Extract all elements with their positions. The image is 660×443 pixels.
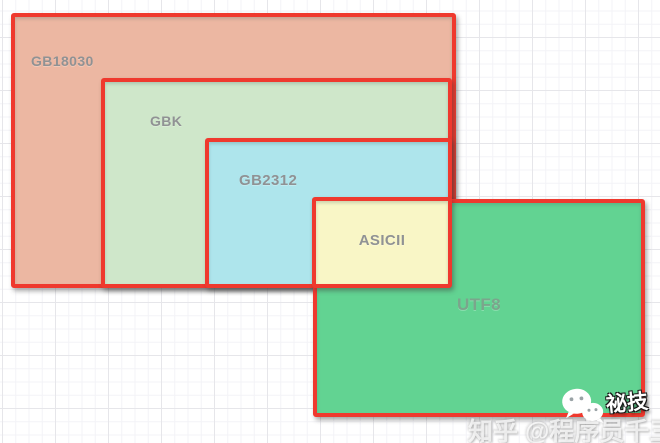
grid-background: GB18030 GBK GB2312 UTF8 ASICII 知乎 @程序员千三… [0,0,660,443]
wechat-badge-label: 祕技 [605,385,649,419]
region-label-asicii: ASICII [316,232,448,249]
wechat-badge: 祕技 [556,380,649,428]
wechat-icon [556,384,605,428]
region-label-utf8: UTF8 [317,295,641,315]
region-label-gb18030: GB18030 [31,53,94,69]
region-asicii: ASICII [312,197,452,288]
region-label-gbk: GBK [150,113,182,129]
region-label-gb2312: GB2312 [239,172,297,189]
